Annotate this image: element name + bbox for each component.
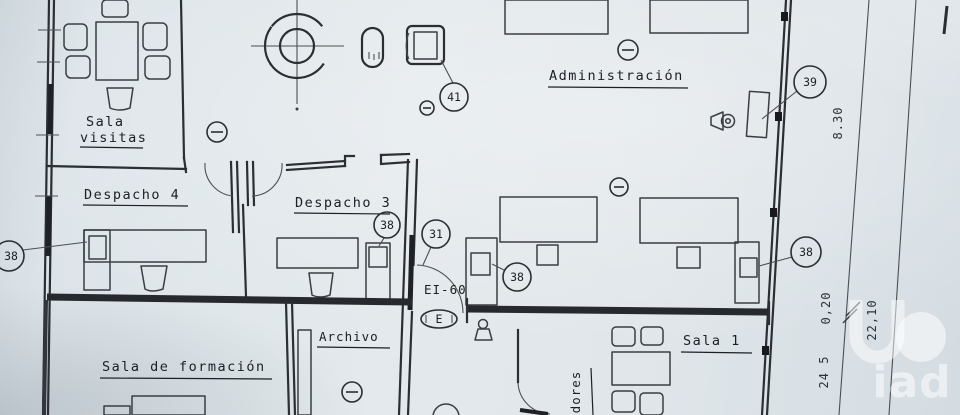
chair: [143, 23, 167, 50]
wall-marker: [775, 112, 782, 121]
callout-39-label: 39: [803, 75, 817, 89]
dimension-0-20: 0,20: [819, 292, 833, 325]
callout-38-left: 38: [0, 241, 87, 271]
edge-mark: [944, 6, 947, 34]
dimension-24-5: 24 5: [817, 356, 831, 389]
callout-31-label: 31: [429, 227, 443, 241]
monitor: [740, 258, 757, 277]
vertical-label-dores: dores: [568, 368, 593, 415]
room-label-archivo: Archivo: [319, 329, 379, 344]
fire-door: EI-60 E: [417, 265, 492, 340]
chair: [145, 56, 170, 79]
detector-icon: [207, 122, 227, 142]
floor-plan-drawing: Sala visitas 41 Ad: [0, 0, 960, 415]
room-label-despacho-3: Despacho 3: [295, 195, 391, 211]
room-label-administracion: Administración: [549, 68, 684, 84]
chair: [102, 0, 128, 17]
chair: [66, 56, 90, 78]
chair: [640, 393, 663, 415]
desk: [84, 230, 206, 262]
desk-return: [735, 242, 759, 303]
chair: [107, 88, 133, 110]
room-archivo: Archivo: [317, 329, 459, 415]
room-sala-visitas: Sala visitas: [47, 0, 186, 169]
partial-symbol: [433, 404, 459, 415]
callout-38-right: 38: [759, 237, 821, 267]
desk: [505, 0, 608, 34]
callout-31: 31: [422, 220, 450, 265]
wall-marker: [762, 346, 769, 355]
detector-icon: [610, 178, 628, 196]
scanned-floor-plan-photo: Sala visitas 41 Ad: [0, 0, 960, 415]
callout-38-despacho3: 38: [374, 212, 400, 246]
room-despacho-4: Despacho 4: [83, 187, 206, 291]
extinguisher-figure-icon: [475, 320, 492, 341]
room-label-sala-visitas-1: Sala: [86, 114, 125, 130]
ceiling-fan-icon: [251, 0, 344, 111]
callout-38-label: 38: [4, 249, 18, 263]
door-arc: [252, 163, 282, 196]
table: [612, 352, 670, 385]
partition-doors: [184, 158, 282, 296]
column: [298, 330, 311, 415]
room-label-sala-visitas-2: visitas: [80, 130, 147, 146]
room-label-despacho-4: Despacho 4: [84, 187, 180, 203]
desk: [277, 238, 358, 268]
callout-41: 41: [440, 60, 468, 111]
room-label-sala-1: Sala 1: [683, 333, 741, 349]
desk: [132, 396, 205, 415]
center-wall: [399, 160, 417, 415]
left-exterior-wall: [35, 0, 61, 415]
desk: [650, 0, 748, 33]
callout-38-label: 38: [380, 218, 394, 232]
detector-icon: [420, 101, 434, 115]
vertical-label-text: dores: [568, 371, 583, 414]
desk: [500, 197, 597, 242]
door-arc: [205, 163, 233, 196]
wall-marker: [781, 12, 788, 21]
room-sala-formacion: Sala de formación: [100, 302, 311, 415]
monitor: [369, 247, 387, 267]
chair: [104, 406, 130, 415]
chair: [641, 327, 663, 345]
fixture-icon: [362, 28, 383, 67]
callout-38-label: 38: [799, 245, 813, 259]
extinguisher-tag: E: [421, 310, 457, 328]
chair: [612, 391, 635, 412]
square-shaft-icon: [406, 26, 444, 64]
monitor: [89, 236, 106, 259]
wall-marker: [770, 208, 777, 217]
wall-horizontal-left: [47, 297, 412, 302]
monitor: [471, 253, 490, 275]
room-label-sala-formacion: Sala de formación: [102, 359, 266, 375]
watermark-text: iad: [872, 357, 951, 408]
room-administracion: Administración: [505, 0, 770, 138]
monitor: [537, 245, 558, 265]
desk: [640, 198, 738, 243]
fire-rating-label: EI-60: [424, 282, 467, 297]
room-sala-1: Sala 1: [612, 327, 752, 415]
chair: [612, 327, 635, 346]
admin-workstations: [466, 178, 759, 305]
chair: [141, 266, 167, 291]
radiator: [746, 91, 769, 137]
meeting-table: [96, 22, 138, 80]
callout-39: 39: [762, 66, 826, 119]
detector-icon: [618, 40, 638, 60]
dimension-22-10: 22,10: [865, 299, 879, 340]
callout-38-label: 38: [510, 270, 524, 284]
callout-41-label: 41: [447, 90, 461, 104]
monitor: [677, 247, 700, 268]
wall-horizontal-right: [467, 299, 769, 324]
chair: [64, 24, 87, 50]
chair: [309, 273, 333, 297]
alarm-sounder-icon: [711, 112, 735, 130]
dimension-8-30: 8.30: [831, 107, 845, 140]
watermark-ball-shape: [896, 312, 946, 362]
detector-icon: [342, 382, 362, 402]
corridor-door: [518, 330, 550, 414]
extinguisher-tag-label: E: [436, 312, 443, 326]
callout-38-sala1: 38: [492, 263, 531, 291]
